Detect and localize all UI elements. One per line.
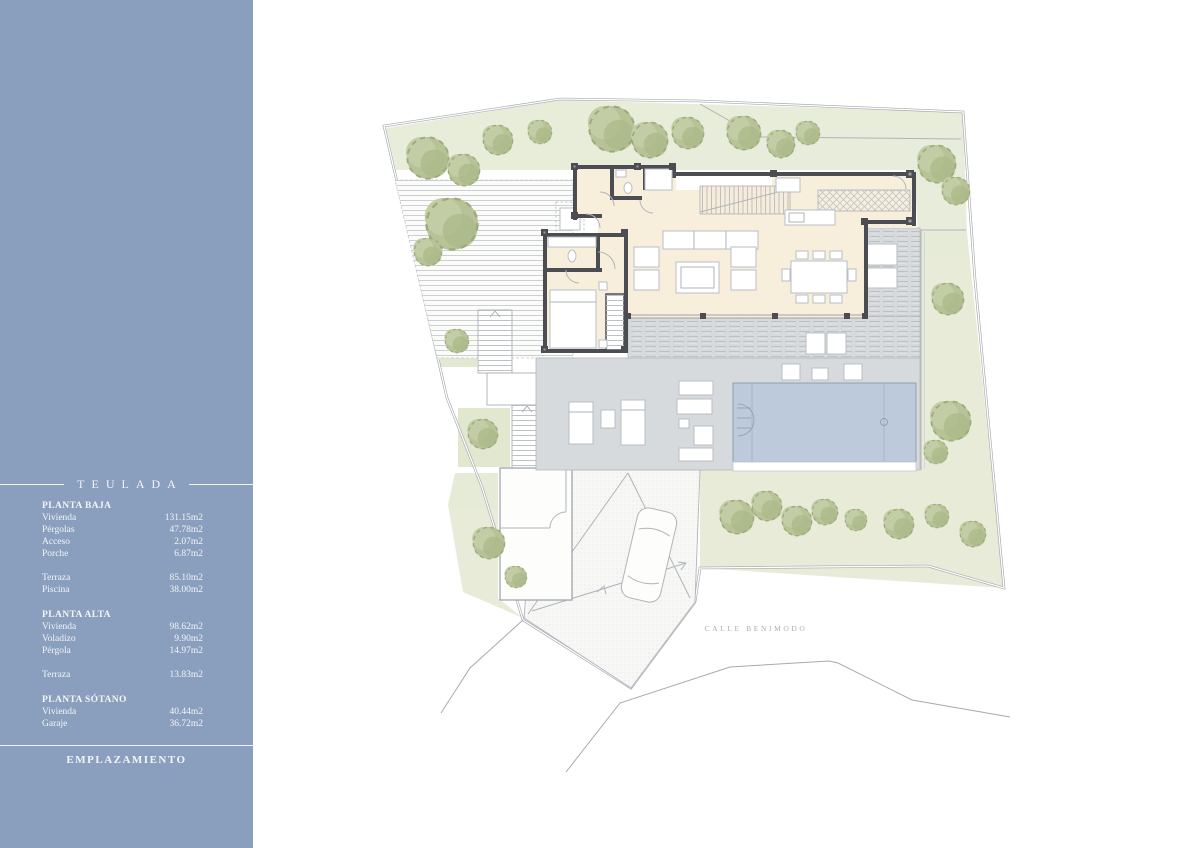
- street: CALLE BENIMODO: [441, 620, 1010, 772]
- footer-rule: [0, 745, 253, 746]
- area-row: Voladizo9.90m2: [42, 633, 203, 645]
- title-rule-right: [189, 484, 253, 485]
- street-label: CALLE BENIMODO: [705, 624, 808, 633]
- section-heading: PLANTA SÓTANO: [42, 694, 203, 706]
- section-planta-baja: PLANTA BAJA Vivienda131.15m2 Pérgolas47.…: [42, 500, 203, 596]
- area-row: Vivienda40.44m2: [42, 706, 203, 718]
- pool: [733, 383, 916, 471]
- project-title: TEULADA: [64, 477, 189, 492]
- area-row: Vivienda98.62m2: [42, 621, 203, 633]
- section-heading: PLANTA BAJA: [42, 500, 203, 512]
- info-sidebar: TEULADA PLANTA BAJA Vivienda131.15m2 Pér…: [0, 0, 253, 848]
- site-plan: CALLE BENIMODO: [253, 0, 1200, 848]
- vanity: [548, 237, 596, 247]
- roof-lattice: [818, 190, 910, 211]
- section-planta-alta: PLANTA ALTA Vivienda98.62m2 Voladizo9.90…: [42, 609, 203, 681]
- project-title-block: TEULADA: [0, 477, 253, 492]
- area-schedule: PLANTA BAJA Vivienda131.15m2 Pérgolas47.…: [42, 500, 203, 730]
- sink: [616, 170, 626, 177]
- section-heading: PLANTA ALTA: [42, 609, 203, 621]
- toilet: [624, 183, 632, 194]
- section-planta-sotano: PLANTA SÓTANO Vivienda40.44m2 Garaje36.7…: [42, 694, 203, 730]
- area-row: Garaje36.72m2: [42, 718, 203, 730]
- closet: [645, 169, 672, 190]
- area-row: Pérgola14.97m2: [42, 645, 203, 657]
- sheet-name: EMPLAZAMIENTO: [0, 754, 253, 766]
- area-row: Acceso2.07m2: [42, 536, 203, 548]
- pergola-south: [628, 316, 920, 358]
- pool-overflow-edge: [733, 462, 916, 471]
- area-row: Terraza13.83m2: [42, 669, 203, 681]
- area-row: Porche6.87m2: [42, 548, 203, 560]
- stair-landing: [487, 373, 543, 405]
- architectural-sheet: TEULADA PLANTA BAJA Vivienda131.15m2 Pér…: [0, 0, 1200, 848]
- area-row: Vivienda131.15m2: [42, 512, 203, 524]
- area-row: Piscina38.00m2: [42, 584, 203, 596]
- area-row: Terraza85.10m2: [42, 572, 203, 584]
- area-row: Pérgolas47.78m2: [42, 524, 203, 536]
- toilet: [568, 250, 576, 262]
- title-rule-left: [0, 484, 64, 485]
- site-plan-drawing: CALLE BENIMODO: [253, 0, 1200, 848]
